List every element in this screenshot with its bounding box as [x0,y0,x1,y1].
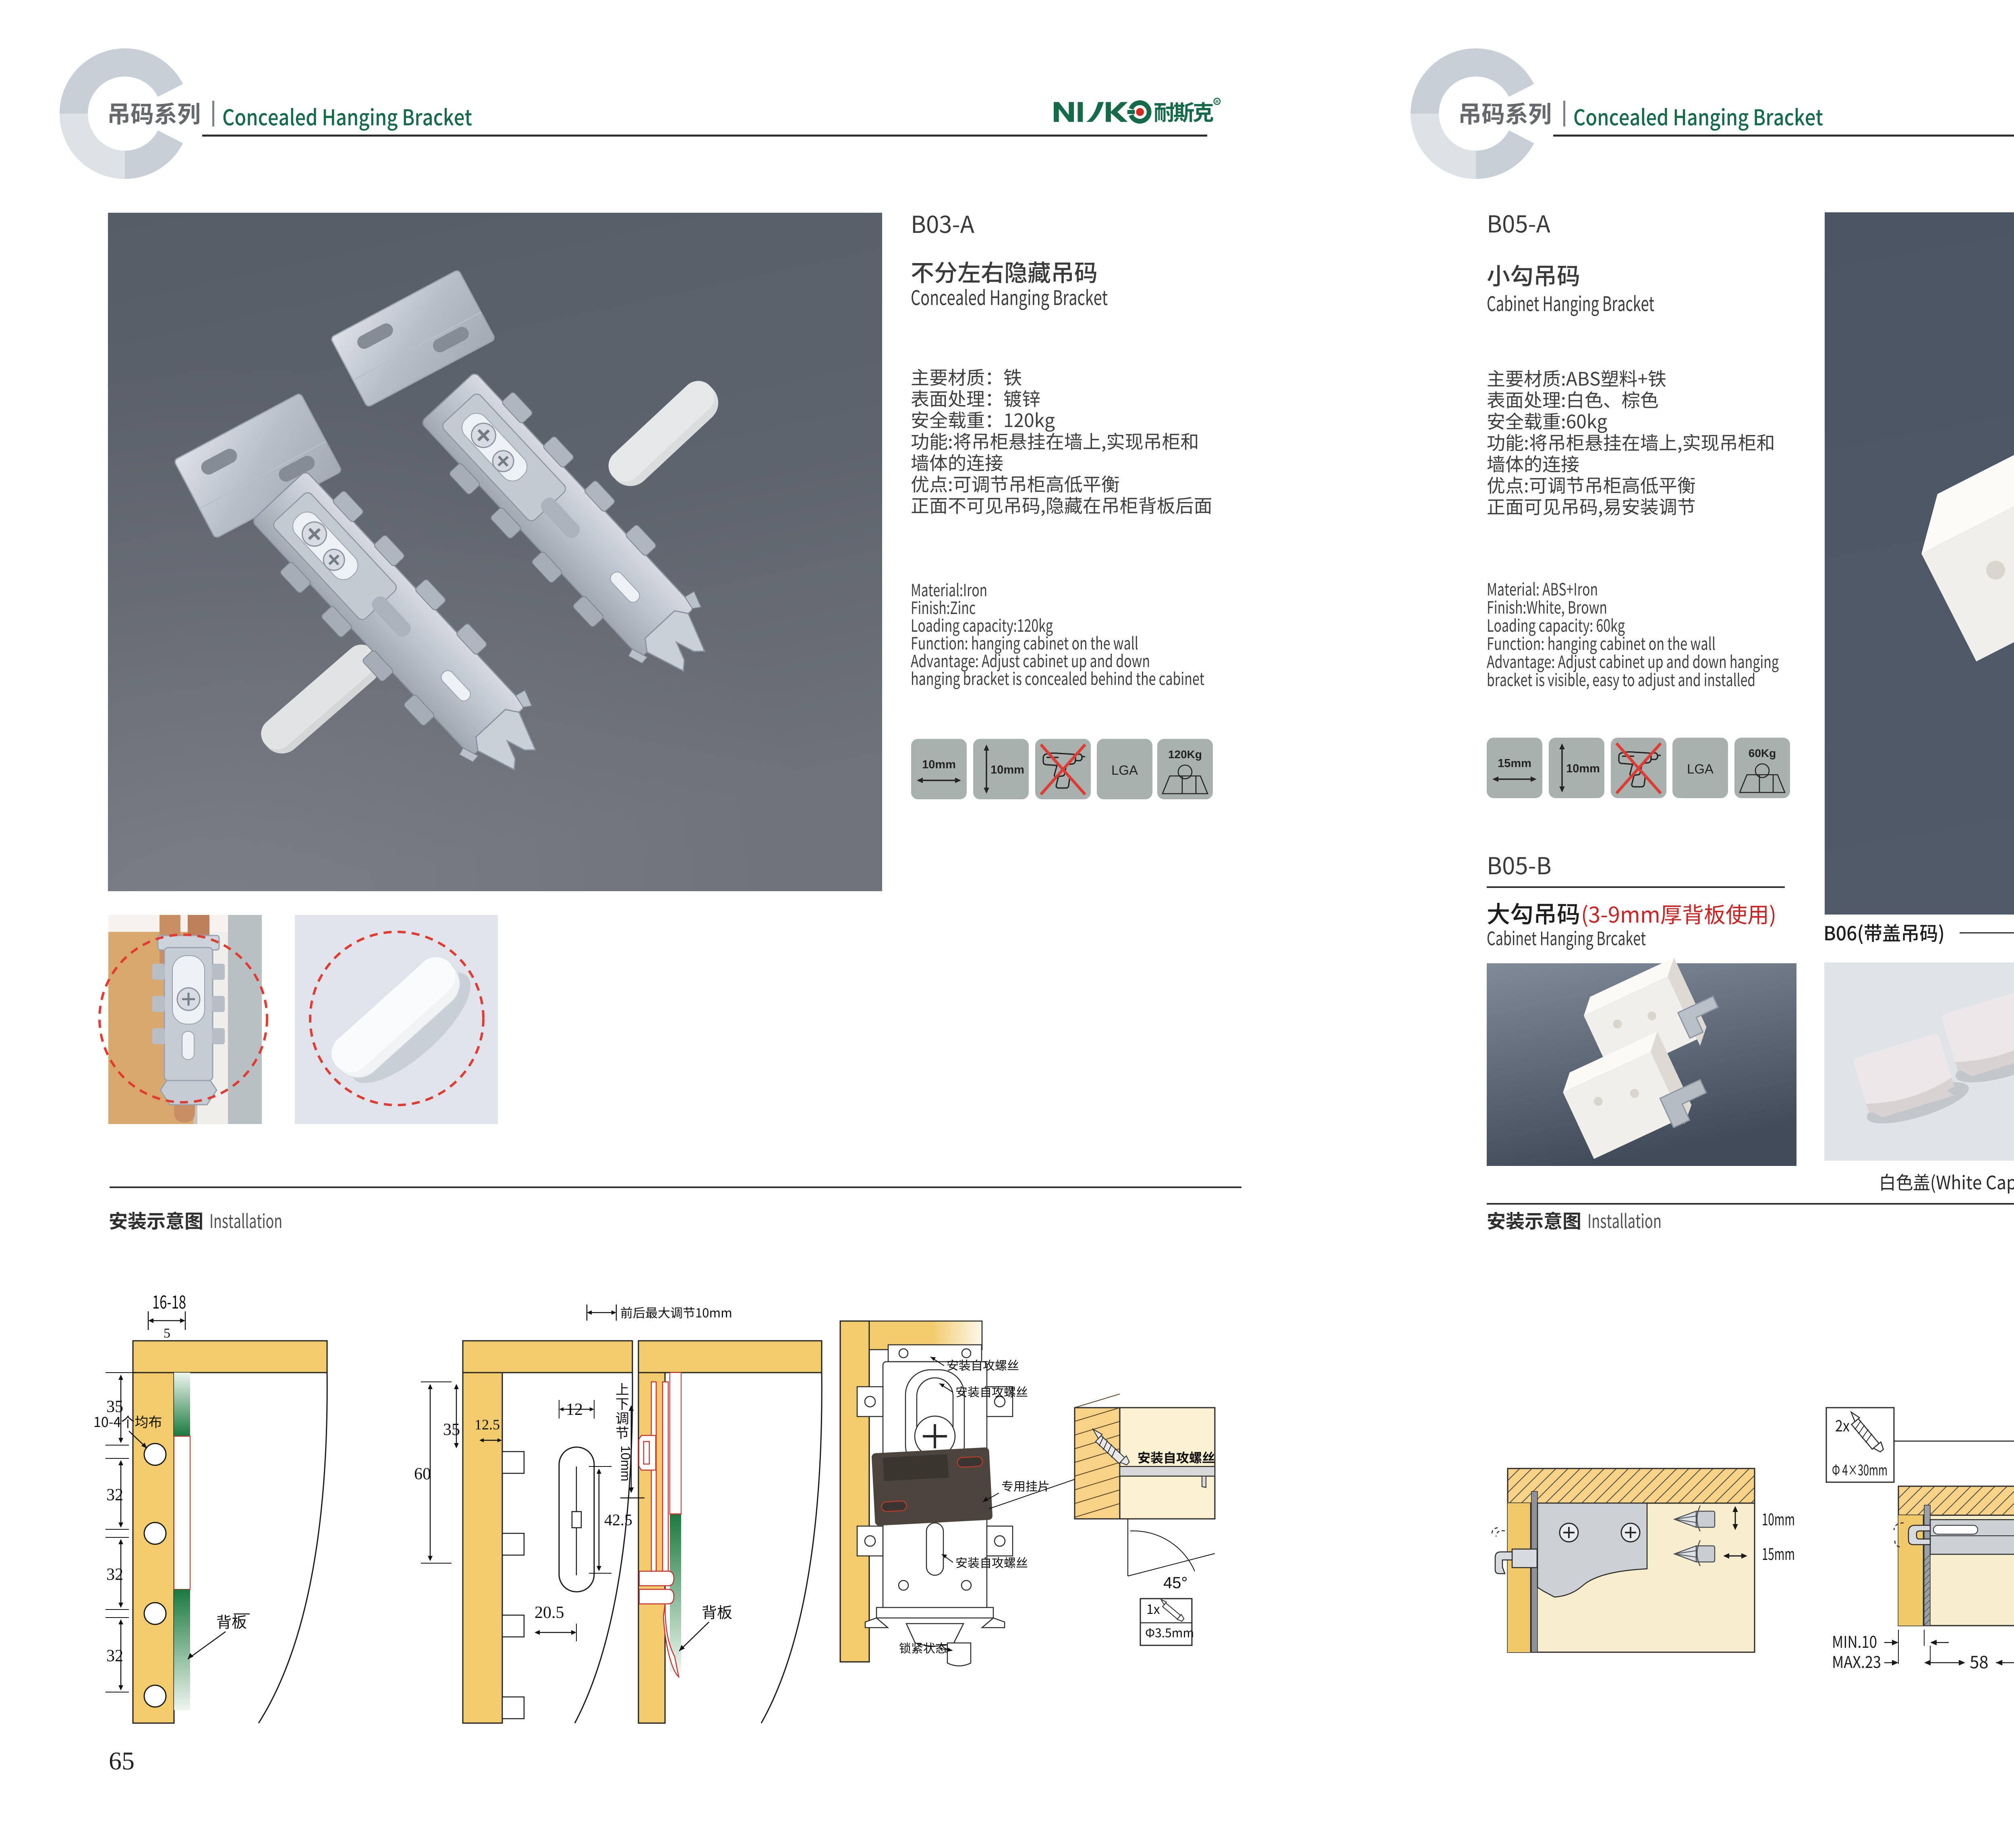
svg-text:15mm: 15mm [1498,757,1531,770]
svg-text:R: R [1215,100,1218,104]
svg-text:5: 5 [164,1326,170,1341]
svg-text:32: 32 [106,1486,123,1504]
svg-text:20.5: 20.5 [535,1603,564,1622]
svg-text:42.5: 42.5 [604,1511,632,1529]
svg-text:12.5: 12.5 [474,1417,500,1433]
svg-text:10mm: 10mm [1566,762,1600,775]
svg-text:35: 35 [106,1398,123,1416]
svg-text:120Kg: 120Kg [1168,748,1202,761]
svg-text:32: 32 [106,1647,123,1665]
svg-text:35: 35 [443,1421,460,1439]
svg-text:60Kg: 60Kg [1749,747,1776,759]
svg-text:10mm: 10mm [618,1446,633,1481]
svg-text:45°: 45° [1163,1574,1188,1592]
svg-text:LGA: LGA [1111,763,1138,778]
svg-text:LGA: LGA [1687,761,1714,776]
svg-text:60: 60 [414,1465,431,1483]
svg-text:65: 65 [109,1746,135,1775]
svg-text:32: 32 [106,1566,123,1584]
svg-text:10mm: 10mm [990,763,1024,776]
svg-text:10mm: 10mm [922,758,956,771]
